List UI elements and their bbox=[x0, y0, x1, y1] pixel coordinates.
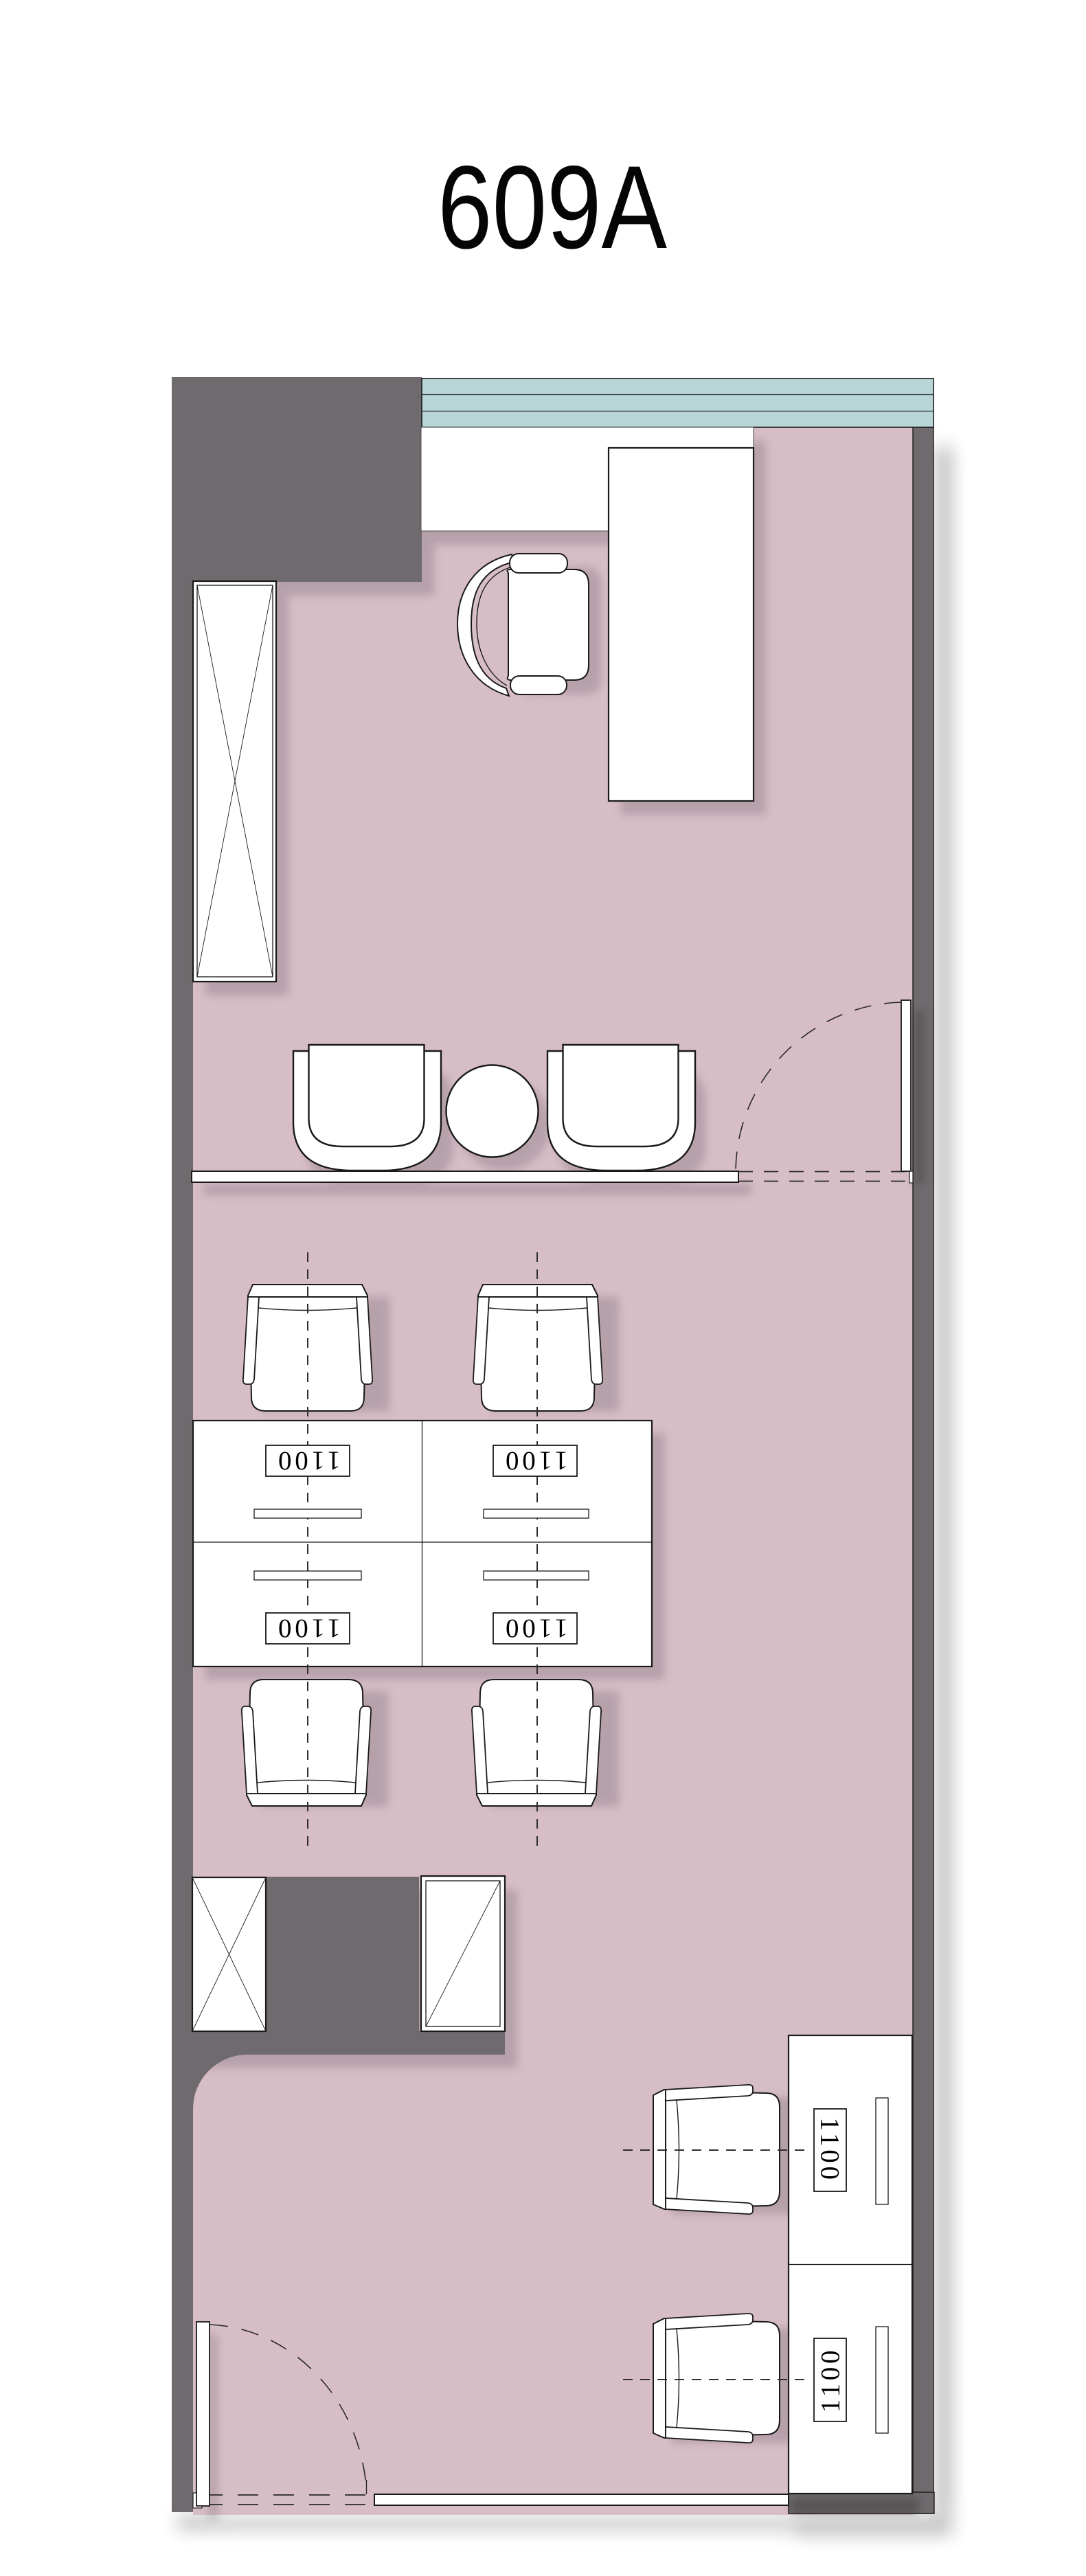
svg-text:1100: 1100 bbox=[816, 2347, 846, 2413]
svg-text:609A: 609A bbox=[438, 142, 667, 273]
svg-text:1100: 1100 bbox=[815, 2117, 845, 2182]
svg-text:1100: 1100 bbox=[502, 1446, 567, 1476]
svg-text:1100: 1100 bbox=[502, 1614, 567, 1643]
svg-text:1100: 1100 bbox=[275, 1446, 340, 1476]
svg-text:1100: 1100 bbox=[275, 1614, 340, 1643]
